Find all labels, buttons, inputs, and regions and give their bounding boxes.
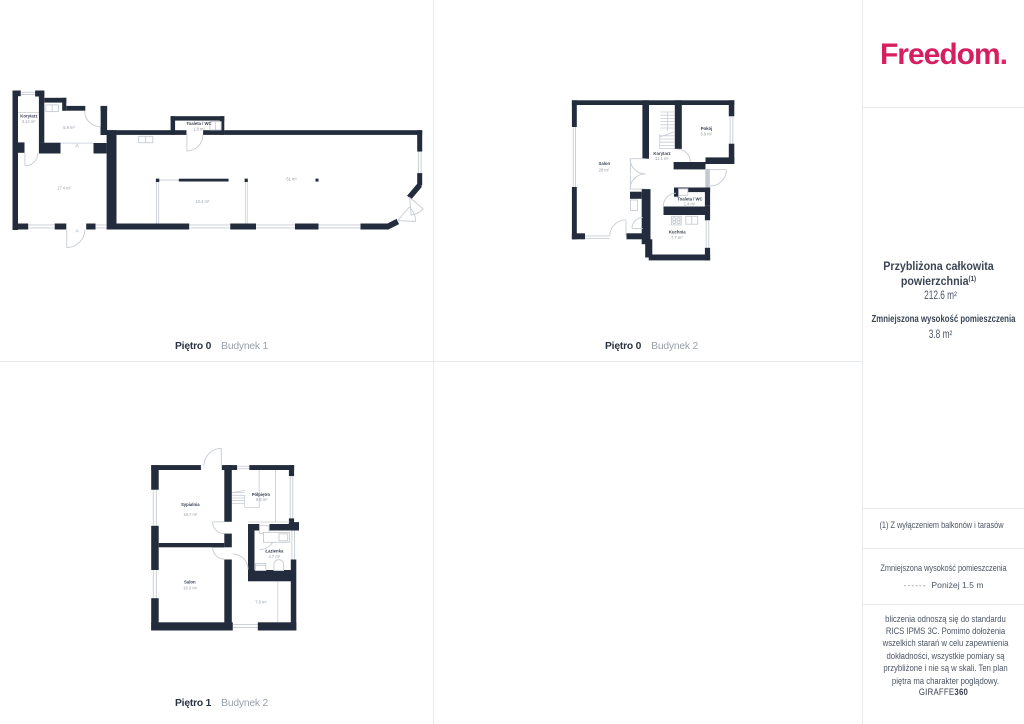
svg-text:6.9 m²: 6.9 m² — [700, 131, 712, 136]
svg-text:7.7 m²: 7.7 m² — [671, 235, 683, 240]
svg-text:10.4 m²: 10.4 m² — [195, 199, 210, 204]
svg-text:11.1 m²: 11.1 m² — [655, 156, 669, 161]
svg-text:Toaleta / WC: Toaleta / WC — [186, 121, 211, 126]
svg-text:3.12 m²: 3.12 m² — [22, 119, 37, 124]
svg-text:4.7 m²: 4.7 m² — [268, 554, 280, 559]
svg-text:1.8 m²: 1.8 m² — [193, 127, 205, 132]
svg-text:Pokój: Pokój — [701, 126, 713, 131]
svg-text:Korytarz: Korytarz — [20, 114, 37, 119]
svg-text:Salon: Salon — [599, 161, 611, 166]
svg-text:Łazienka: Łazienka — [265, 549, 284, 554]
svg-text:7.8 m²: 7.8 m² — [255, 600, 267, 605]
svg-text:Sypialnia: Sypialnia — [181, 502, 200, 507]
svg-text:Salon: Salon — [184, 580, 196, 585]
svg-text:16.9 m²: 16.9 m² — [183, 585, 198, 590]
svg-text:1.4 m²: 1.4 m² — [684, 202, 696, 207]
svg-text:17.4 m²: 17.4 m² — [57, 186, 72, 191]
svg-text:61 m²: 61 m² — [286, 176, 297, 181]
svg-text:Kuchnia: Kuchnia — [669, 230, 686, 235]
svg-text:28 m²: 28 m² — [599, 168, 610, 173]
svg-text:5.9 m²: 5.9 m² — [63, 125, 75, 130]
svg-text:9.8 m²: 9.8 m² — [256, 497, 268, 502]
svg-text:16.7 m²: 16.7 m² — [183, 512, 198, 517]
